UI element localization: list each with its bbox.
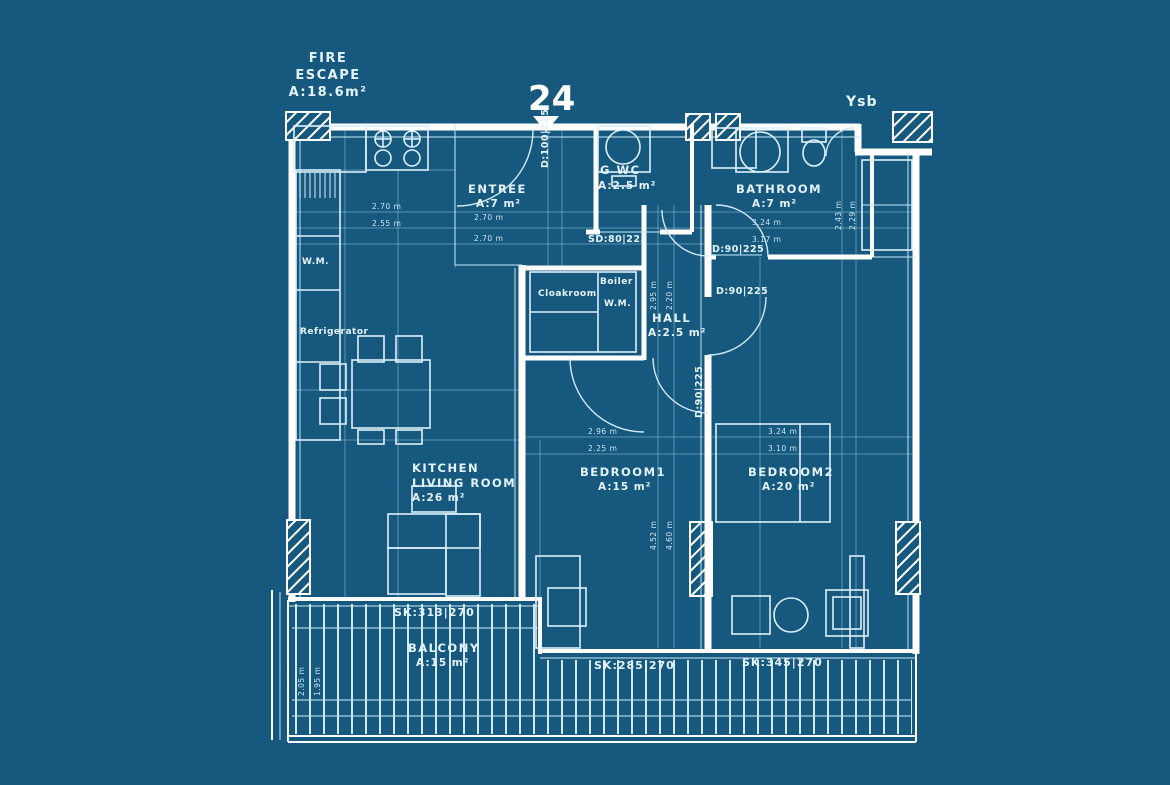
dim-hall-h1: 2.95 m [649, 281, 658, 310]
pouf [774, 598, 808, 632]
dim-shaft-h2: 2.29 m [848, 201, 857, 230]
balcony-window-left-label: SK:313|270 [394, 606, 475, 619]
guest-wc-area: A:2.5 m² [598, 180, 656, 192]
entry-door-label: D:100|225 [540, 109, 551, 168]
header-texts: FIRE ESCAPE A:18.6m² 24 Ysb [289, 51, 878, 132]
dim-bedroom2-w1: 3.24 m [768, 427, 797, 436]
dim-bedroom2-w2: 3.10 m [768, 444, 797, 453]
dining-table [352, 360, 430, 428]
wc-fixtures [598, 126, 650, 186]
fire-escape-label-line1: FIRE [309, 51, 348, 66]
dim-kitchen-w2: 2.55 m [372, 219, 401, 228]
blueprint-floor-plan: FIRE ESCAPE A:18.6m² 24 Ysb ENTREE A:7 m… [0, 0, 1170, 785]
guest-wc-label: G WC [600, 163, 641, 177]
dim-hall-h2: 2.20 m [665, 281, 674, 310]
bedroom2-door-label: D:90|225 [716, 286, 768, 297]
bedroom1-area: A:15 m² [598, 481, 651, 493]
balcony-window-right-label: SK:345|270 [742, 656, 823, 669]
bedroom1-door-label: D:90|225 [694, 366, 705, 418]
balcony-window-mid-label: SK:285|270 [594, 659, 675, 672]
dim-balcony-h2: 1.95 m [313, 667, 322, 696]
boiler-label: Boiler [600, 277, 633, 287]
dim-bedroom1-h1: 4.52 m [649, 521, 658, 550]
refrigerator-label: Refrigerator [300, 327, 369, 337]
bedroom1-label: BEDROOM1 [580, 465, 666, 479]
bath-sink [740, 132, 780, 172]
floor-plan-drawing: FIRE ESCAPE A:18.6m² 24 Ysb ENTREE A:7 m… [0, 0, 1170, 785]
dim-bathroom-w2: 3.17 m [752, 235, 781, 244]
balcony-area: A:15 m² [416, 657, 469, 669]
sofa-seat [388, 548, 446, 594]
entree-area: A:7 m² [476, 198, 521, 210]
dim-entree-w2: 2.70 m [474, 234, 503, 243]
hall-area: A:2.5 m² [648, 327, 706, 339]
fire-escape-label-line2: ESCAPE [295, 68, 360, 83]
kitchen-living-area: A:26 m² [412, 492, 465, 504]
fire-escape-area: A:18.6m² [289, 85, 368, 100]
hall-lower-door-arc [570, 358, 644, 432]
dim-bathroom-w1: 3.24 m [752, 218, 781, 227]
door-arcs [457, 128, 854, 432]
wc-sliding-door-label: SD:80|225 [588, 234, 648, 245]
toilet-bowl [803, 140, 825, 166]
kitchen-counter [296, 170, 340, 440]
dim-balcony-h1: 2.05 m [297, 667, 306, 696]
dim-bedroom1-h2: 4.60 m [665, 521, 674, 550]
dim-shaft-h1: 2.43 m [834, 201, 843, 230]
bedroom1-furniture [536, 556, 586, 648]
bathroom-door-label: D:90|225 [712, 244, 764, 255]
boiler-wm-label: W.M. [604, 299, 631, 309]
bedroom2-furniture [716, 424, 868, 648]
sofa-back [388, 514, 480, 548]
wc-sink [606, 130, 640, 164]
bedroom2-label: BEDROOM2 [748, 465, 834, 479]
shower-door-arc [826, 128, 854, 156]
cloakroom-label: Cloakroom [538, 289, 597, 299]
dim-bedroom1-w1: 2.96 m [588, 427, 617, 436]
bedroom2-area: A:20 m² [762, 481, 815, 493]
entree-label: ENTREE [468, 182, 527, 196]
bathroom-area: A:7 m² [752, 198, 797, 210]
dim-entree-w1: 2.70 m [474, 213, 503, 222]
top-right-label: Ysb [845, 94, 878, 110]
living-room-label: LIVING ROOM [412, 476, 516, 490]
kitchen-label: KITCHEN [412, 461, 479, 475]
dim-kitchen-w1: 2.70 m [372, 202, 401, 211]
balcony-label: BALCONY [408, 641, 480, 655]
washing-machine-label: W.M. [302, 257, 329, 267]
sofa-chaise [446, 514, 480, 596]
bathroom-label: BATHROOM [736, 182, 822, 196]
bedroom2-door-arc [708, 297, 766, 355]
nightstand-1 [732, 596, 770, 634]
hall-label: HALL [652, 311, 691, 325]
dim-bedroom1-w2: 2.25 m [588, 444, 617, 453]
kitchen-furniture [294, 126, 428, 440]
dish-rack [300, 173, 335, 198]
unit-number: 24 [528, 79, 575, 119]
